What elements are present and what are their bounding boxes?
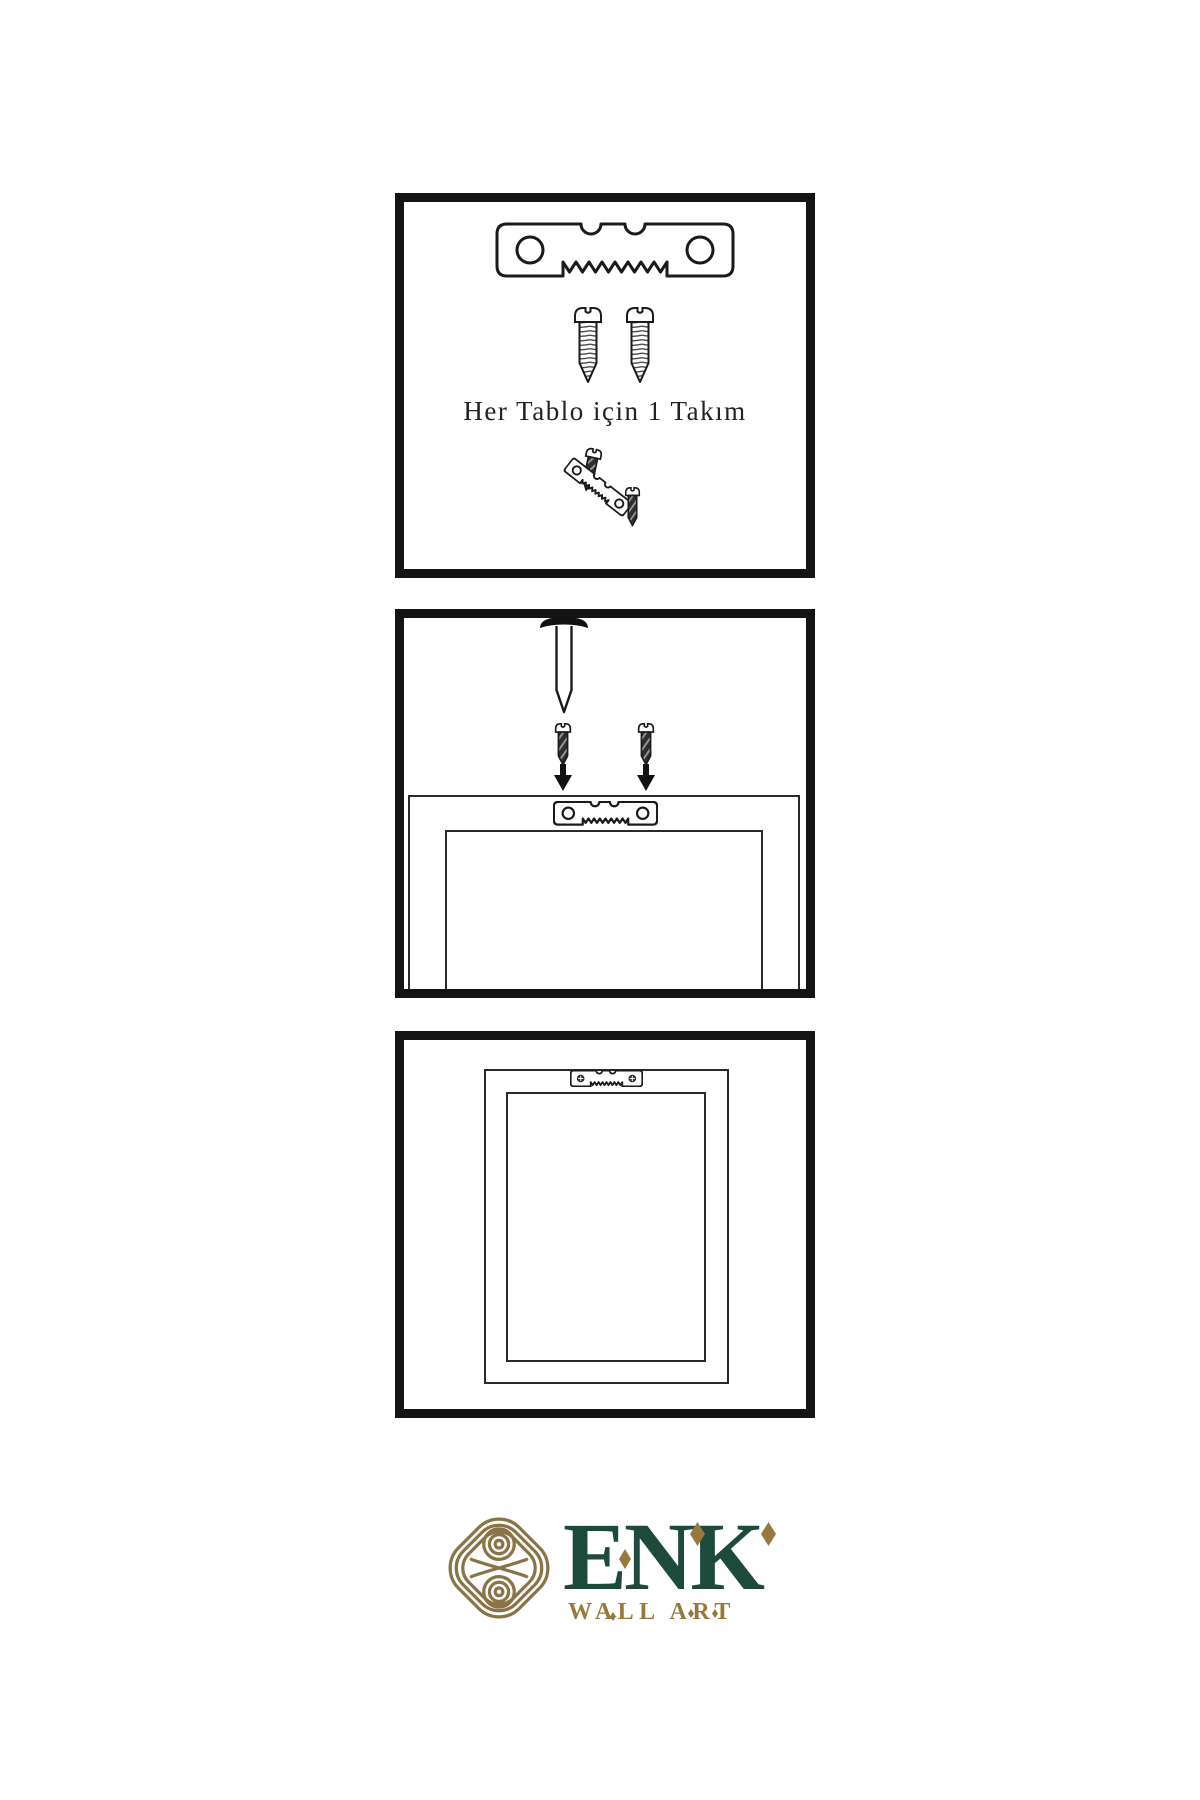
hung-frame-inner: [506, 1092, 706, 1362]
frame-back-inner: [445, 830, 763, 989]
screw-icon: [624, 306, 656, 384]
screw-icon: [572, 306, 604, 384]
knot-logo-icon: [437, 1505, 561, 1631]
dark-screw-icon: [636, 722, 656, 766]
brand-name: ENK: [563, 1509, 762, 1605]
dark-screw-icon: [624, 486, 641, 527]
arrow-down-icon: [554, 764, 572, 791]
sawtooth-hanger-icon: [553, 801, 658, 826]
sawtooth-hanger-fastened-icon: [570, 1070, 643, 1087]
dark-screw-icon: [553, 722, 573, 766]
diamond-ornament-icon: [761, 1522, 776, 1546]
step-1-caption: Her Tablo için 1 Takım: [395, 396, 815, 427]
sawtooth-hanger-icon: [495, 222, 735, 278]
instruction-sheet: Her Tablo için 1 Takım: [0, 0, 1200, 1800]
brand-logo: [437, 1505, 561, 1631]
arrow-down-icon: [637, 764, 655, 791]
wall-nail-icon: [540, 617, 588, 717]
brand-tagline: WALL ART: [568, 1600, 736, 1624]
